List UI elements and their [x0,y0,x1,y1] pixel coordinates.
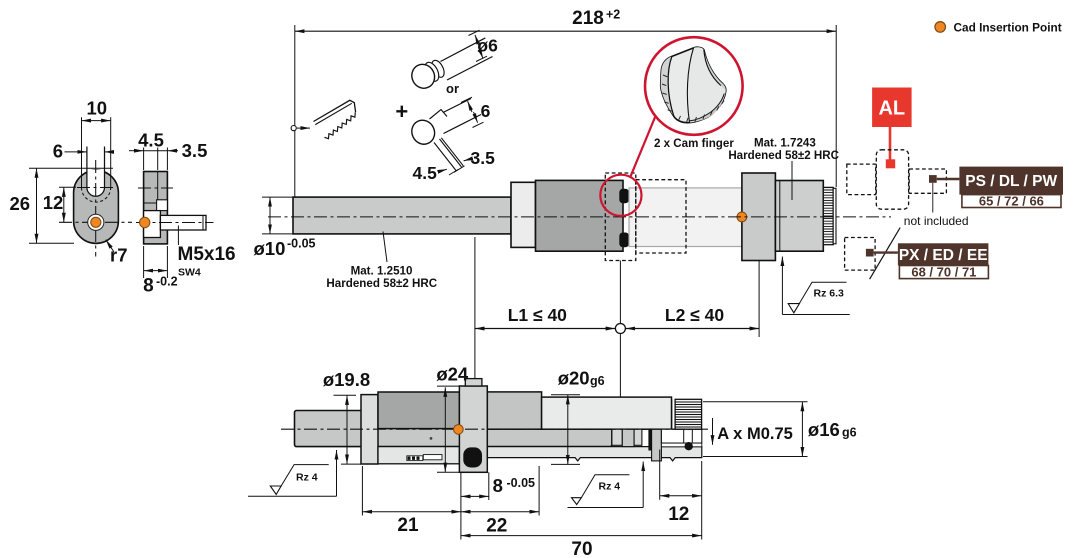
svg-text:4.5: 4.5 [138,130,164,151]
svg-text:Rz 4: Rz 4 [296,472,318,484]
svg-text:4.5: 4.5 [413,163,438,183]
svg-text:+2: +2 [606,8,620,22]
svg-text:2 x Cam finger: 2 x Cam finger [654,137,734,150]
svg-text:3.5: 3.5 [471,148,496,168]
svg-text:8: 8 [493,475,503,496]
svg-text:ø20: ø20 [558,367,590,388]
svg-text:22: 22 [486,516,507,537]
svg-text:Mat. 1.7243: Mat. 1.7243 [754,136,816,149]
svg-text:PS / DL / PW: PS / DL / PW [965,173,1057,190]
svg-text:26: 26 [10,193,31,214]
svg-text:12: 12 [43,192,64,213]
svg-text:8: 8 [143,276,154,297]
svg-text:218: 218 [572,8,604,29]
svg-text:AL: AL [878,98,905,120]
svg-text:Rz 4: Rz 4 [599,481,621,493]
svg-text:10: 10 [87,98,108,119]
svg-text:ø16: ø16 [808,419,840,440]
svg-text:L1 ≤ 40: L1 ≤ 40 [508,305,567,325]
svg-text:M5x16: M5x16 [178,244,236,265]
svg-text:g6: g6 [590,374,605,388]
svg-text:Cad Insertion Point: Cad Insertion Point [954,21,1062,35]
svg-text:Hardened 58±2 HRC: Hardened 58±2 HRC [326,277,437,290]
svg-text:g6: g6 [842,426,857,440]
svg-text:+: + [395,99,408,124]
svg-text:PX / ED / EE: PX / ED / EE [899,247,988,264]
svg-text:-0.05: -0.05 [507,476,536,490]
svg-text:ø10: ø10 [254,238,286,259]
svg-text:-0.2: -0.2 [156,274,178,288]
svg-text:Hardened 58±2 HRC: Hardened 58±2 HRC [728,149,839,162]
svg-text:not included: not included [904,214,969,228]
svg-text:Rz 6.3: Rz 6.3 [814,288,845,300]
svg-text:6: 6 [481,101,491,121]
svg-text:r7: r7 [110,245,128,266]
svg-text:21: 21 [397,515,419,536]
svg-text:-0.05: -0.05 [287,237,316,251]
svg-text:6: 6 [53,141,63,162]
svg-text:or: or [446,81,459,96]
svg-text:L2 ≤ 40: L2 ≤ 40 [665,305,724,325]
svg-text:65 / 72 / 66: 65 / 72 / 66 [979,193,1044,208]
svg-text:68 / 70 / 71: 68 / 70 / 71 [911,265,976,280]
svg-text:Mat. 1.2510: Mat. 1.2510 [351,264,413,277]
svg-text:ø24: ø24 [436,363,469,384]
svg-text:ø6: ø6 [477,36,498,56]
svg-text:12: 12 [668,504,689,525]
svg-text:A x M0.75: A x M0.75 [717,425,793,443]
svg-text:ø19.8: ø19.8 [323,369,370,390]
svg-text:70: 70 [571,539,592,558]
svg-text:3.5: 3.5 [182,140,208,161]
svg-text:SW4: SW4 [178,267,201,279]
